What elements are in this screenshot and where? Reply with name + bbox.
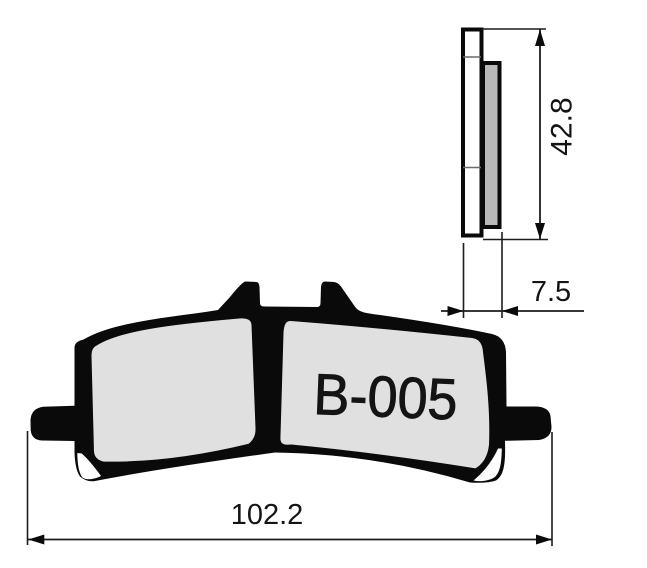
svg-text:102.2: 102.2 <box>231 499 304 531</box>
svg-text:42.8: 42.8 <box>546 97 579 155</box>
svg-text:B-005: B-005 <box>312 362 458 433</box>
svg-text:7.5: 7.5 <box>531 276 571 308</box>
